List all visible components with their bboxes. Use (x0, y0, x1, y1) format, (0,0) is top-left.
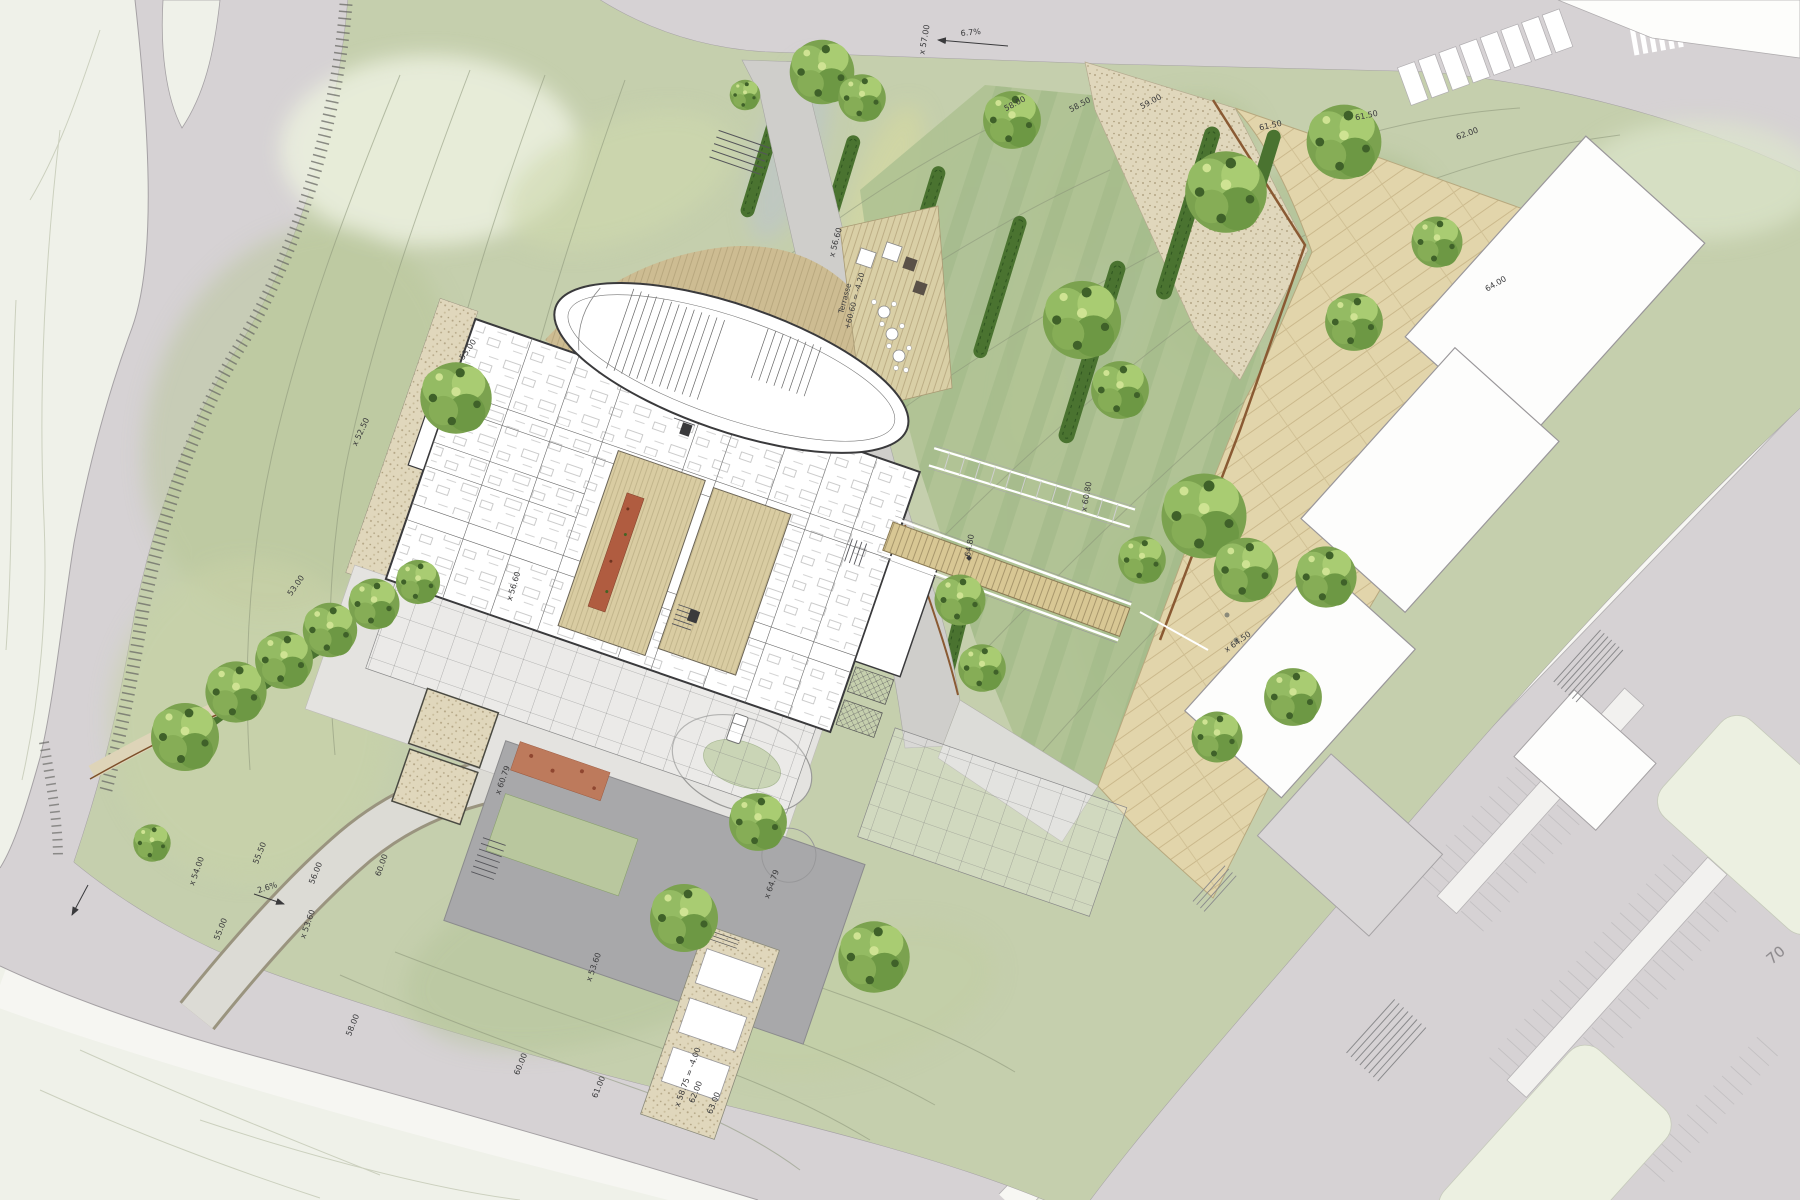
terrace-table-round (893, 350, 905, 362)
terrace-table-round (878, 306, 890, 318)
site-plan-drawing: x 52.50 x 56.60 x 57.00 x 56.60 x 60.79 … (0, 0, 1800, 1200)
terrace-table-round (886, 328, 898, 340)
